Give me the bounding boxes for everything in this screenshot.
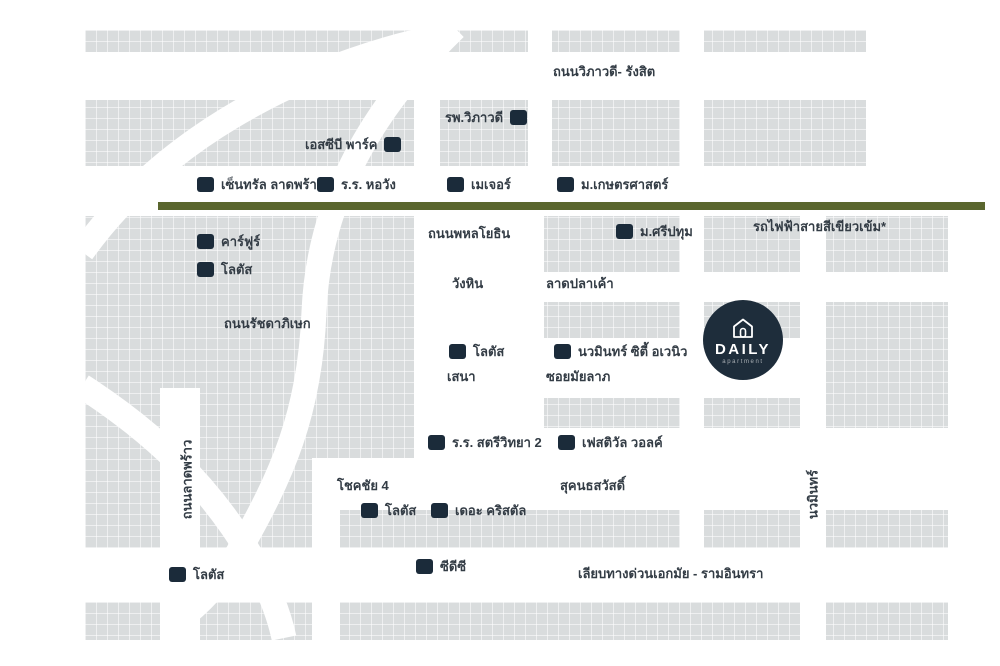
poi-marker-icon (197, 234, 214, 249)
poi-marker-icon (428, 435, 445, 450)
road-label-phahonyothin: ถนนพหลโยธิน (428, 226, 510, 241)
poi-central-ladprao: เซ็นทรัล ลาดพร้าว (197, 177, 324, 192)
poi-lotus-chokchai: โลตัส (361, 503, 416, 518)
poi-label: โลตัส (221, 262, 252, 277)
poi-label: เซ็นทรัล ลาดพร้าว (221, 177, 324, 192)
poi-kasetsart-university: ม.เกษตรศาสตร์ (557, 177, 668, 192)
poi-marker-icon (197, 262, 214, 277)
poi-label: เอสซีบี พาร์ค (305, 137, 377, 152)
poi-marker-icon (169, 567, 186, 582)
poi-lotus-expressway: โลตัส (169, 567, 224, 582)
poi-marker-icon (557, 177, 574, 192)
poi-label: ม.เกษตรศาสตร์ (581, 177, 668, 192)
poi-marker-icon (447, 177, 464, 192)
daily-logo-badge: DAILY apartment (703, 300, 783, 380)
poi-the-crystal: เดอะ คริสตัล (431, 503, 526, 518)
road-label-sukhonthasawat: สุคนธสวัสดิ์ (560, 478, 625, 493)
poi-marker-icon (317, 177, 334, 192)
poi-label: เมเจอร์ (471, 177, 511, 192)
poi-marker-icon (510, 110, 527, 125)
poi-marker-icon (554, 344, 571, 359)
road-label-vibhavadi: ถนนวิภาวดี- รังสิต (553, 64, 655, 79)
map-page: ถนนวิภาวดี- รังสิต ถนนพหลโยธิน รถไฟฟ้าสา… (0, 0, 1000, 666)
road-vertical-c (414, 30, 440, 166)
poi-scb-park: เอสซีบี พาร์ค (305, 137, 401, 152)
poi-label: โลตัส (385, 503, 416, 518)
poi-label: ม.ศรีปทุม (640, 224, 693, 239)
road-vertical-d (528, 30, 552, 166)
poi-cdc: ซีดีซี (416, 559, 466, 574)
poi-label: ร.ร. หอวัง (341, 177, 396, 192)
badge-tagline: apartment (722, 359, 763, 365)
poi-label: นวมินทร์ ซิตี้ อเวนิว (578, 344, 687, 359)
poi-label: โลตัส (473, 344, 504, 359)
poi-marker-icon (384, 137, 401, 152)
poi-marker-icon (431, 503, 448, 518)
map-corner-cutout (866, 30, 948, 216)
poi-vibhavadi-hospital: รพ.วิภาวดี (445, 110, 527, 125)
area-label-sena: เสนา (447, 369, 476, 384)
poi-marker-icon (558, 435, 575, 450)
transit-line-label: รถไฟฟ้าสายสีเขียวเข้ม* (753, 219, 886, 234)
transit-line-green (158, 202, 985, 210)
poi-marker-icon (616, 224, 633, 239)
poi-lotus-wanghin: โลตัส (449, 344, 504, 359)
poi-label: ซีดีซี (440, 559, 466, 574)
poi-satriwitthaya2-school: ร.ร. สตรีวิทยา 2 (428, 435, 542, 450)
poi-carrefour: คาร์ฟูร์ (197, 234, 260, 249)
poi-label: เฟสติวัล วอลค์ (582, 435, 663, 450)
road-vertical-e (680, 30, 704, 602)
area-label-latplakao: ลาดปลาเค้า (546, 276, 614, 291)
poi-marker-icon (197, 177, 214, 192)
road-vertical-mid (414, 216, 544, 510)
poi-label: ร.ร. สตรีวิทยา 2 (452, 435, 542, 450)
road-nawamin (800, 166, 826, 640)
road-label-ladprao: ถนนลาดพร้าว (180, 415, 195, 545)
road-label-nawamin: นวมินทร์ (806, 435, 821, 555)
poi-label: เดอะ คริสตัล (455, 503, 526, 518)
poi-marker-icon (449, 344, 466, 359)
road-label-mayalap: ซอยมัยลาภ (546, 369, 610, 384)
poi-label: คาร์ฟูร์ (221, 234, 260, 249)
poi-major: เมเจอร์ (447, 177, 511, 192)
road-label-expressway: เลียบทางด่วนเอกมัย - รามอินทรา (578, 566, 763, 581)
house-icon (730, 316, 756, 340)
area-label-chokchai4: โชคชัย 4 (337, 478, 389, 493)
poi-horwang-school: ร.ร. หอวัง (317, 177, 396, 192)
poi-sripatum-university: ม.ศรีปทุม (616, 224, 693, 239)
poi-festival-walk: เฟสติวัล วอลค์ (558, 435, 663, 450)
road-label-ratchadaphisek: ถนนรัชดาภิเษก (224, 316, 311, 331)
poi-label: รพ.วิภาวดี (445, 110, 503, 125)
poi-marker-icon (416, 559, 433, 574)
road-vertical-b (312, 510, 340, 640)
poi-nawamin-city-avenue: นวมินทร์ ซิตี้ อเวนิว (554, 344, 687, 359)
area-label-wanghin: วังหิน (452, 276, 483, 291)
poi-label: โลตัส (193, 567, 224, 582)
road-vibhavadi (85, 52, 948, 100)
poi-lotus-ladprao: โลตัส (197, 262, 252, 277)
poi-marker-icon (361, 503, 378, 518)
badge-title: DAILY (715, 341, 771, 358)
